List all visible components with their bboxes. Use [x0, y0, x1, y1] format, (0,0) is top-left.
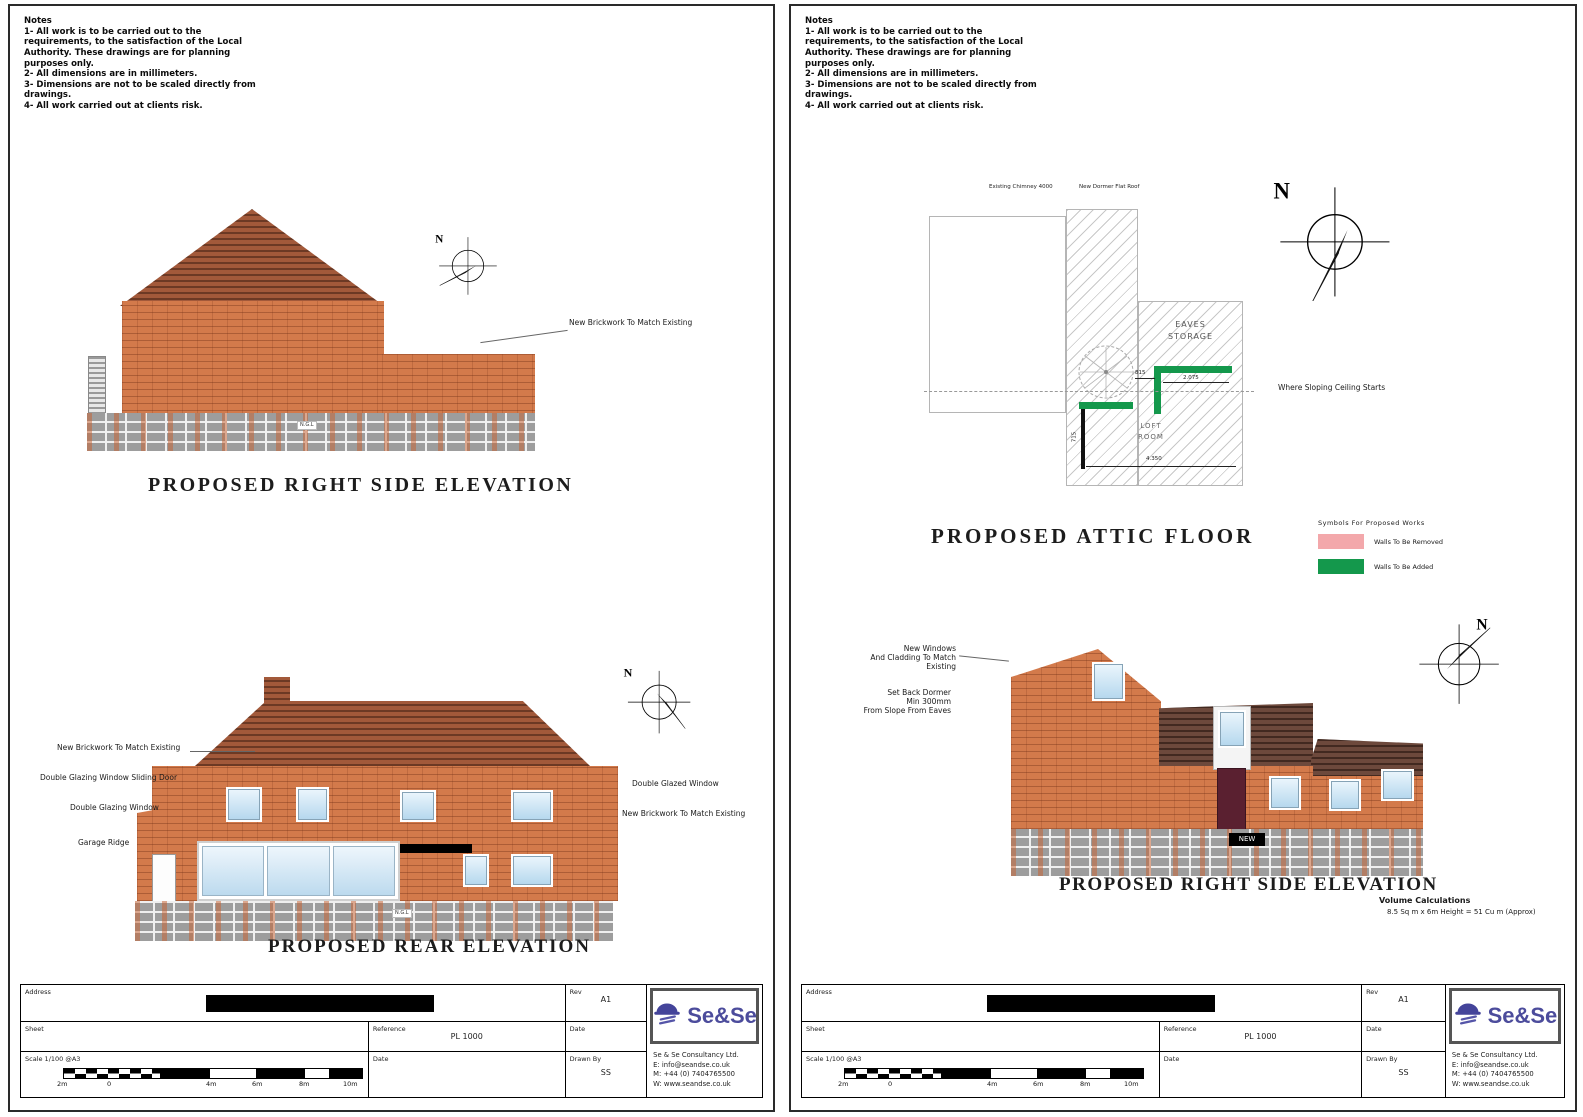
leader-line — [959, 655, 1009, 661]
rear-elevation-foundation — [135, 901, 613, 941]
rev-cell: Rev A1 — [566, 985, 647, 1022]
scale-tick: 4m — [206, 1080, 216, 1088]
scale-tick: 2m — [57, 1080, 67, 1088]
note-line: 4- All work carried out at clients risk. — [24, 101, 264, 112]
title-block: Address Sheet Reference PL 1000 Scale 1/… — [801, 984, 1565, 1098]
ann-line: Set Back Dormer — [831, 688, 951, 697]
scale-bar-segment — [160, 1069, 210, 1078]
side-door — [1217, 768, 1246, 836]
elevation-annotation-2: Set Back Dormer Min 300mm From Slope Fro… — [831, 688, 951, 715]
reference-cell: Reference PL 1000 — [1160, 1022, 1361, 1051]
company-line: W: www.seandse.co.uk — [1452, 1080, 1538, 1090]
rear-label: New Brickwork To Match Existing — [622, 809, 745, 818]
window — [1271, 778, 1299, 808]
north-arrow-icon: N — [1409, 614, 1504, 709]
new-wall — [1154, 366, 1232, 373]
dim-line — [1086, 466, 1236, 467]
hardhat-icon — [1453, 999, 1483, 1033]
north-arrow-icon: N — [1269, 176, 1394, 301]
scale-bar-segment — [941, 1069, 991, 1078]
title-block-main: Address Sheet Reference PL 1000 Scale 1/… — [21, 985, 566, 1097]
scale-label: Scale 1/100 @A3 — [806, 1055, 861, 1063]
hardhat-icon — [652, 999, 682, 1033]
eaves-line: EAVES — [1143, 319, 1238, 331]
logo-box: Se&Se — [1449, 988, 1561, 1044]
sheet-right: Notes 1- All work is to be carried out t… — [789, 4, 1577, 1112]
legend-title: Symbols For Proposed Works — [1318, 519, 1425, 527]
note-line: 1- All work is to be carried out to the — [805, 27, 1045, 38]
date2-label: Date — [570, 1025, 586, 1033]
note-line: Authority. These drawings are for planni… — [24, 48, 264, 59]
scale-bar-segment — [1086, 1069, 1110, 1078]
north-arrow-icon: N — [430, 228, 502, 300]
rear-elevation-title: PROPOSED REAR ELEVATION — [268, 936, 591, 958]
plan-dimension: New Dormer Flat Roof — [1079, 184, 1139, 190]
rear-label: Garage Ridge — [78, 838, 129, 847]
note-line: drawings. — [24, 90, 264, 101]
ceiling-dash-line — [924, 391, 1254, 392]
side-elevation-side-window — [88, 356, 106, 420]
drawnby-cell: Drawn By SS — [1362, 1052, 1445, 1097]
address-row: Address — [802, 985, 1361, 1022]
company-line: E: info@seandse.co.uk — [1452, 1061, 1538, 1071]
window — [298, 789, 327, 820]
patio-pane — [267, 846, 329, 896]
drawnby-cell: Drawn By SS — [566, 1052, 647, 1097]
logo-text: Se&Se — [1488, 1003, 1558, 1029]
patio-pane — [202, 846, 264, 896]
eaves-line: STORAGE — [1143, 331, 1238, 343]
date2-cell: Date — [1362, 1022, 1445, 1052]
rear-door — [152, 854, 176, 903]
velux-window — [1094, 664, 1123, 699]
side-elevation-rear-extension-wall — [382, 354, 535, 418]
north-arrow-icon: N — [618, 661, 696, 739]
elevation-annotation-1: New Windows And Cladding To Match Existi… — [846, 644, 956, 671]
svg-text:N: N — [1274, 179, 1291, 204]
room-line: ROOM — [1111, 432, 1191, 443]
dim-line — [1163, 382, 1229, 383]
dormer-window — [1220, 712, 1244, 746]
scale-cell: Scale 1/100 @A3 2m 0 4m 6m 8m 10m — [21, 1052, 369, 1097]
room-line: LOFT — [1111, 421, 1191, 432]
note-line: 2- All dimensions are in millimeters. — [24, 69, 264, 80]
note-line: Authority. These drawings are for planni… — [805, 48, 1045, 59]
window — [228, 789, 260, 820]
svg-text:N: N — [1476, 617, 1488, 634]
scale-tick: 2m — [838, 1080, 848, 1088]
new-wall — [1079, 402, 1133, 409]
sheet-cell: Sheet — [802, 1022, 1160, 1051]
scale-bar-segment — [64, 1069, 160, 1078]
note-line: purposes only. — [805, 59, 1045, 70]
sloping-ceiling-label: Where Sloping Ceiling Starts — [1278, 383, 1385, 392]
sheet-cell: Sheet — [21, 1022, 369, 1051]
scale-tick: 8m — [299, 1080, 309, 1088]
address-label: Address — [806, 988, 832, 996]
scale-bar-segment — [210, 1069, 256, 1078]
title-block-logo: Se&Se Se & Se Consultancy Ltd. E: info@s… — [1446, 985, 1564, 1097]
notes-block: Notes 1- All work is to be carried out t… — [24, 16, 264, 112]
svg-text:N: N — [624, 666, 633, 680]
ann-line: Min 300mm — [831, 697, 951, 706]
dim-line — [1135, 378, 1155, 379]
note-line: 2- All dimensions are in millimeters. — [805, 69, 1045, 80]
drawnby-label: Drawn By — [1366, 1055, 1397, 1063]
scale-bar-segment — [329, 1069, 362, 1078]
sheet-label: Sheet — [806, 1025, 825, 1033]
note-line: drawings. — [805, 90, 1045, 101]
window — [465, 856, 487, 885]
scale-tick: 6m — [1033, 1080, 1043, 1088]
leader-line — [190, 751, 255, 752]
scale-bar — [844, 1068, 1144, 1079]
side-elevation-title: PROPOSED RIGHT SIDE ELEVATION — [148, 474, 573, 497]
address-label: Address — [25, 988, 51, 996]
ann-line: And Cladding To Match — [846, 653, 956, 662]
window — [1331, 781, 1359, 809]
scale-bar-segment — [305, 1069, 329, 1078]
right-side-elevation-title: PROPOSED RIGHT SIDE ELEVATION — [1059, 874, 1438, 896]
sheet-row: Sheet Reference PL 1000 — [802, 1022, 1361, 1052]
plan-dimension: Existing Chimney 4000 — [989, 184, 1053, 190]
window — [513, 792, 551, 820]
side-elevation-roof — [120, 209, 384, 306]
reference-value: PL 1000 — [369, 1032, 565, 1041]
note-line: requirements, to the satisfaction of the… — [24, 37, 264, 48]
scale-bar-segment — [845, 1069, 941, 1078]
scale-bar-segment — [256, 1069, 305, 1078]
logo-box: Se&Se — [650, 988, 759, 1044]
rev-value: A1 — [1362, 995, 1445, 1004]
scale-bar-segment — [1110, 1069, 1143, 1078]
plan-dimension: 4.350 — [1146, 456, 1162, 462]
plan-dimension: 2.075 — [1183, 375, 1199, 381]
legend-removed-label: Walls To Be Removed — [1374, 538, 1443, 546]
scale-label: Scale 1/100 @A3 — [25, 1055, 80, 1063]
notes-block: Notes 1- All work is to be carried out t… — [805, 16, 1045, 112]
date-cell: Date — [369, 1052, 565, 1097]
scale-tick: 0 — [107, 1080, 111, 1088]
scale-row: Scale 1/100 @A3 2m 0 4m 6m 8m 10m — [21, 1052, 565, 1097]
ann-line: From Slope From Eaves — [831, 706, 951, 715]
ann-line: New Windows — [846, 644, 956, 653]
scale-bar-segment — [1037, 1069, 1086, 1078]
company-info: Se & Se Consultancy Ltd. E: info@seandse… — [1452, 1051, 1538, 1089]
title-block-main: Address Sheet Reference PL 1000 Scale 1/… — [802, 985, 1362, 1097]
side-elevation-foundation — [87, 413, 535, 451]
elevation-gable-wall — [1011, 649, 1161, 836]
reference-value: PL 1000 — [1160, 1032, 1361, 1041]
note-line: 3- Dimensions are not to be scaled direc… — [24, 80, 264, 91]
rev-cell: Rev A1 — [1362, 985, 1445, 1022]
loft-room-label: LOFT ROOM — [1111, 421, 1191, 442]
scale-bar-segment — [991, 1069, 1037, 1078]
notes-title: Notes — [24, 16, 264, 27]
note-line: requirements, to the satisfaction of the… — [805, 37, 1045, 48]
note-line: 4- All work carried out at clients risk. — [805, 101, 1045, 112]
title-block: Address Sheet Reference PL 1000 Scale 1/… — [20, 984, 763, 1098]
date2-cell: Date — [566, 1022, 647, 1052]
redacted-address — [987, 995, 1215, 1012]
leader-line — [480, 330, 567, 343]
date2-label: Date — [1366, 1025, 1382, 1033]
sheet-row: Sheet Reference PL 1000 — [21, 1022, 565, 1052]
scale-bar — [63, 1068, 363, 1079]
scale-tick: 10m — [1124, 1080, 1139, 1088]
rear-label: Double Glazing Window Sliding Door — [40, 773, 177, 782]
scale-tick: 0 — [888, 1080, 892, 1088]
company-line: E: info@seandse.co.uk — [653, 1061, 739, 1071]
ground-level-tag: N.G.L — [297, 421, 317, 430]
lintel-beam — [400, 844, 472, 853]
new-tag: NEW — [1229, 833, 1265, 846]
rev-value: A1 — [566, 995, 647, 1004]
notes-title: Notes — [805, 16, 1045, 27]
rear-label: Double Glazed Window — [632, 779, 719, 788]
legend-added-label: Walls To Be Added — [1374, 563, 1433, 571]
plan-dimension: 715 — [1071, 432, 1077, 443]
company-line: M: +44 (0) 7404765500 — [653, 1070, 739, 1080]
side-elevation-wall — [122, 301, 384, 418]
window — [1383, 771, 1412, 799]
rear-label: Double Glazing Window — [70, 803, 159, 812]
company-line: W: www.seandse.co.uk — [653, 1080, 739, 1090]
title-block-mid: Rev A1 Date Drawn By SS — [1362, 985, 1446, 1097]
patio-pane — [333, 846, 395, 896]
drawnby-label: Drawn By — [570, 1055, 601, 1063]
company-line: M: +44 (0) 7404765500 — [1452, 1070, 1538, 1080]
sheet-label: Sheet — [25, 1025, 44, 1033]
svg-text:N: N — [435, 233, 443, 245]
scale-row: Scale 1/100 @A3 2m 0 4m 6m 8m 10m — [802, 1052, 1361, 1097]
title-block-mid: Rev A1 Date Drawn By SS — [566, 985, 648, 1097]
note-line: purposes only. — [24, 59, 264, 70]
volume-calc-title: Volume Calculations — [1379, 896, 1470, 905]
rear-label: New Brickwork To Match Existing — [57, 743, 180, 752]
legend-added-swatch — [1318, 559, 1364, 574]
new-wall — [1154, 366, 1161, 414]
scale-tick: 4m — [987, 1080, 997, 1088]
sheet-left: Notes 1- All work is to be carried out t… — [8, 4, 775, 1112]
ground-level-tag: N.G.L — [392, 909, 412, 918]
attic-room-outline — [929, 216, 1066, 413]
drawnby-value: SS — [1362, 1068, 1445, 1077]
plan-dimension: 815 — [1135, 370, 1146, 376]
scale-tick: 10m — [343, 1080, 358, 1088]
volume-calc-line: 8.5 Sq m x 6m Height = 51 Cu m (Approx) — [1387, 908, 1536, 916]
company-line: Se & Se Consultancy Ltd. — [1452, 1051, 1538, 1061]
scale-tick: 8m — [1080, 1080, 1090, 1088]
legend-removed-swatch — [1318, 534, 1364, 549]
date-cell: Date — [1160, 1052, 1361, 1097]
scale-tick: 6m — [252, 1080, 262, 1088]
redacted-address — [206, 995, 434, 1012]
reference-cell: Reference PL 1000 — [369, 1022, 565, 1051]
date-label: Date — [373, 1055, 389, 1063]
side-elevation-annotation: New Brickwork To Match Existing — [569, 318, 692, 327]
attic-floor-title: PROPOSED ATTIC FLOOR — [931, 524, 1254, 549]
note-line: 3- Dimensions are not to be scaled direc… — [805, 80, 1045, 91]
note-line: 1- All work is to be carried out to the — [24, 27, 264, 38]
window — [513, 856, 551, 885]
window — [402, 792, 434, 820]
scale-cell: Scale 1/100 @A3 2m 0 4m 6m 8m 10m — [802, 1052, 1160, 1097]
company-info: Se & Se Consultancy Ltd. E: info@seandse… — [653, 1051, 739, 1089]
title-block-logo: Se&Se Se & Se Consultancy Ltd. E: info@s… — [647, 985, 762, 1097]
patio-sliding-door — [197, 841, 400, 901]
eaves-storage-label: EAVES STORAGE — [1143, 319, 1238, 343]
date-label: Date — [1164, 1055, 1180, 1063]
drawnby-value: SS — [566, 1068, 647, 1077]
room-wall — [1081, 409, 1085, 469]
elevation-foundation — [1011, 829, 1423, 876]
ann-line: Existing — [846, 662, 956, 671]
company-line: Se & Se Consultancy Ltd. — [653, 1051, 739, 1061]
logo-text: Se&Se — [687, 1003, 757, 1029]
rear-elevation-roof — [195, 701, 590, 766]
address-row: Address — [21, 985, 565, 1022]
